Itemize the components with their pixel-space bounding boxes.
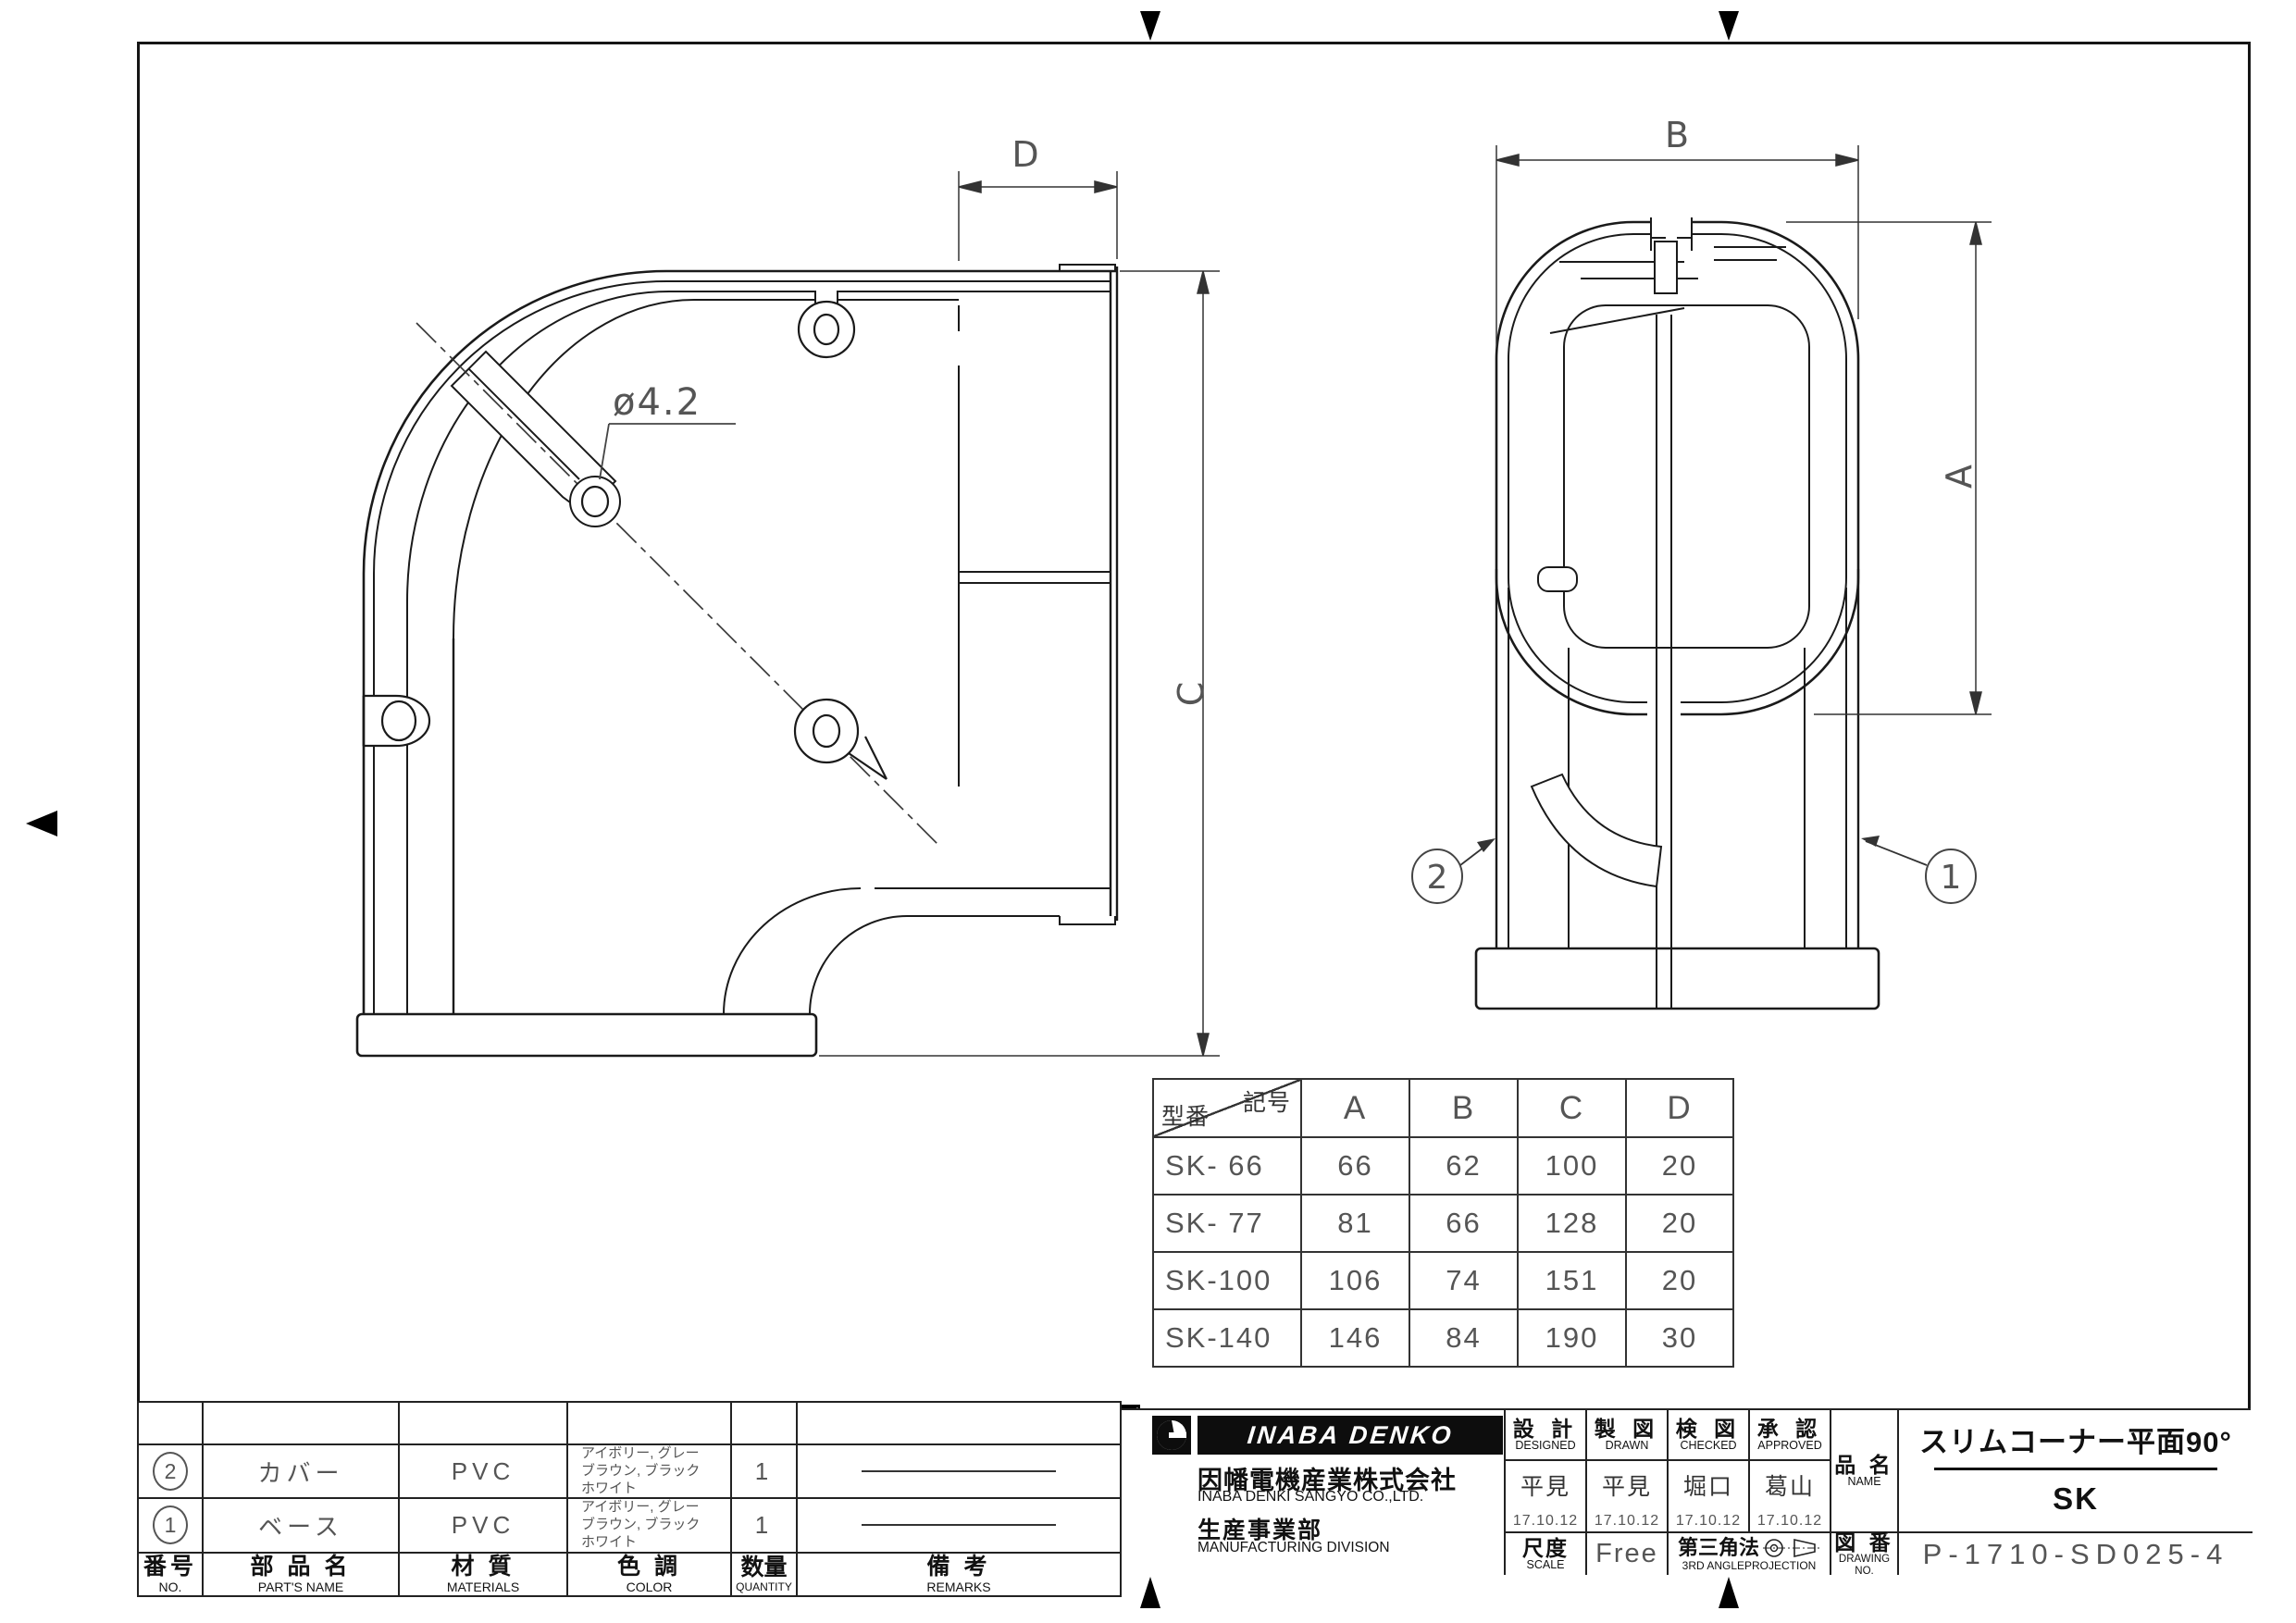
corner-label-model: 型番 [1161, 1098, 1210, 1132]
empty-row [138, 1402, 1121, 1444]
designed-date: 17.10.12 [1513, 1513, 1578, 1530]
part-name: カバー [203, 1444, 399, 1498]
remarks-dash [862, 1470, 1056, 1472]
approval-cell-designed: 平見17.10.12 [1504, 1461, 1585, 1531]
header-name: 部 品 名 [204, 1554, 398, 1580]
dimension-table: 記号 型番 A B C D SK- 66 66 62 100 20 SK- 77… [1152, 1078, 1734, 1368]
header-quantity: 数量 [732, 1555, 796, 1581]
part-qty: 1 [731, 1444, 797, 1498]
model-cell: SK- 77 [1153, 1195, 1301, 1252]
top-latch-notch [1651, 214, 1692, 293]
parts-header-row: 番号 NO. 部 品 名 PART'S NAME 材 質 MATERIALS 色… [138, 1553, 1121, 1596]
part-material: PVC [399, 1498, 567, 1552]
col-header-D: D [1626, 1079, 1733, 1137]
dim-D-label: D [1011, 134, 1038, 175]
reg-mark-top-1-icon [1140, 11, 1160, 41]
company-name-jp: 因幡電機産業株式会社 [1198, 1460, 1512, 1488]
value-cell: 66 [1301, 1137, 1409, 1195]
model-cell: SK-100 [1153, 1252, 1301, 1309]
header-materials: 材 質 [400, 1554, 566, 1580]
section-view-end: B A 2 1 [1379, 106, 2230, 1032]
model-cell: SK- 66 [1153, 1137, 1301, 1195]
product-name: スリムコーナー平面90° [1919, 1419, 2232, 1460]
dimension-C: C [819, 271, 1220, 1056]
value-cell: 106 [1301, 1252, 1409, 1309]
balloon-cover-number: 2 [1427, 859, 1448, 897]
remarks-dash [862, 1524, 1056, 1526]
value-cell: 190 [1518, 1309, 1626, 1367]
col-header-A: A [1301, 1079, 1409, 1137]
balloon-base-number: 1 [1941, 859, 1962, 897]
part-number-badge: 1 [153, 1505, 188, 1544]
drawing-number: P-1710-SD025-4 [1923, 1538, 2229, 1571]
col-header-C: C [1518, 1079, 1626, 1137]
checked-date: 17.10.12 [1676, 1513, 1741, 1530]
value-cell: 20 [1626, 1137, 1733, 1195]
value-cell: 100 [1518, 1137, 1626, 1195]
screw-hole-4-2: ø4.2 [570, 381, 736, 527]
approved-date: 17.10.12 [1757, 1513, 1822, 1530]
drawing-sheet: { "sheet": { "views": { "plan": { "dim_d… [0, 0, 2296, 1623]
third-angle-projection-icon [1763, 1536, 1820, 1560]
value-cell: 66 [1409, 1195, 1518, 1252]
drafter-name: 平見 [1602, 1468, 1652, 1502]
division-jp: 生産事業部 [1198, 1512, 1512, 1538]
reg-mark-bottom-2-icon [1719, 1577, 1739, 1608]
value-cell: 81 [1301, 1195, 1409, 1252]
part-row-cover: 2 カバー PVC アイボリー, グレー ブラウン, ブラック ホワイト 1 [138, 1444, 1121, 1498]
part-number-badge: 2 [153, 1452, 188, 1491]
projection-cell: 第三角法 3RD ANGLEPROJECTION [1667, 1531, 1830, 1575]
approval-cell-checked: 堀口17.10.12 [1667, 1461, 1748, 1531]
hole-diameter-label: ø4.2 [613, 381, 701, 424]
logo-band: INABA DENKO [1198, 1416, 1503, 1455]
scale-value-cell: Free [1585, 1531, 1667, 1575]
approval-header-drawn: 製 図DRAWN [1585, 1410, 1667, 1461]
corner-label-symbol: 記号 [1243, 1084, 1291, 1118]
part-material: PVC [399, 1444, 567, 1498]
part-colors: アイボリー, グレー ブラウン, ブラック ホワイト [567, 1498, 731, 1552]
dimension-D: D [959, 134, 1117, 261]
dwgno-content-cell: P-1710-SD025-4 [1897, 1531, 2253, 1575]
part-name: ベース [203, 1498, 399, 1552]
dim-B-label: B [1665, 115, 1689, 155]
reg-mark-top-2-icon [1719, 11, 1739, 41]
balloon-base: 1 [1861, 836, 1976, 903]
left-mounting-tab [364, 696, 429, 746]
projection-en: 3RD ANGLEPROJECTION [1682, 1560, 1817, 1572]
value-cell: 151 [1518, 1252, 1626, 1309]
dim-C-label: C [1171, 682, 1211, 707]
balloon-cover: 2 [1412, 838, 1496, 903]
product-code: SK [2053, 1481, 2099, 1517]
section-base-flange [1476, 948, 1879, 1009]
approval-header-designed: 設 計DESIGNED [1504, 1410, 1585, 1461]
parts-list-table: 2 カバー PVC アイボリー, グレー ブラウン, ブラック ホワイト 1 1… [137, 1401, 1122, 1597]
value-cell: 62 [1409, 1137, 1518, 1195]
col-header-B: B [1409, 1079, 1518, 1137]
inner-corner-boss [795, 700, 887, 779]
value-cell: 74 [1409, 1252, 1518, 1309]
scale-value: Free [1595, 1539, 1658, 1569]
approval-cell-approved: 葛山17.10.12 [1748, 1461, 1830, 1531]
dimension-A: A [1786, 222, 1992, 714]
table-row: SK-100 106 74 151 20 [1153, 1252, 1733, 1309]
value-cell: 84 [1409, 1309, 1518, 1367]
name-content-cell: スリムコーナー平面90° SK [1897, 1410, 2253, 1531]
dim-A-label: A [1939, 465, 1980, 489]
part-colors: アイボリー, グレー ブラウン, ブラック ホワイト [567, 1444, 731, 1498]
value-cell: 146 [1301, 1309, 1409, 1367]
model-cell: SK-140 [1153, 1309, 1301, 1367]
central-divider [1647, 315, 1681, 1009]
name-label-cell: 品 名 NAME [1830, 1410, 1897, 1531]
scale-label-cell: 尺度SCALE [1504, 1531, 1585, 1575]
dwgno-label-cell: 図 番 DRAWING NO. [1830, 1531, 1897, 1575]
header-remarks: 備 考 [798, 1554, 1120, 1580]
title-block: INABA DENKO 因幡電機産業株式会社 INABA DENKI SANGY… [1120, 1408, 2251, 1573]
checker-name: 堀口 [1683, 1468, 1733, 1502]
drawn-date: 17.10.12 [1595, 1513, 1659, 1530]
table-row: SK-140 146 84 190 30 [1153, 1309, 1733, 1367]
bottom-base-flange [357, 1014, 816, 1056]
approval-cell-drawn: 平見17.10.12 [1585, 1461, 1667, 1531]
projection-jp: 第三角法 [1678, 1537, 1759, 1558]
plan-view-90deg-corner: ø4.2 D C [194, 83, 1416, 1083]
division-en: MANUFACTURING DIVISION [1198, 1540, 1512, 1558]
left-hook-tab [1538, 567, 1577, 591]
curved-flap [1532, 774, 1661, 886]
value-cell: 20 [1626, 1252, 1733, 1309]
value-cell: 20 [1626, 1195, 1733, 1252]
part-row-base: 1 ベース PVC アイボリー, グレー ブラウン, ブラック ホワイト 1 [138, 1498, 1121, 1552]
approver-name: 葛山 [1765, 1468, 1815, 1502]
reg-mark-bottom-1-icon [1140, 1577, 1160, 1608]
value-cell: 30 [1626, 1309, 1733, 1367]
reg-mark-left-icon [26, 811, 57, 836]
dim-table-corner-cell: 記号 型番 [1153, 1079, 1301, 1137]
value-cell: 128 [1518, 1195, 1626, 1252]
company-name-en: INABA DENKI SANGYO CO.,LTD. [1198, 1489, 1512, 1507]
table-row: SK- 66 66 62 100 20 [1153, 1137, 1733, 1195]
table-row: SK- 77 81 66 128 20 [1153, 1195, 1733, 1252]
approval-header-approved: 承 認APPROVED [1748, 1410, 1830, 1461]
company-logo [1152, 1416, 1191, 1455]
logo-text: INABA DENKO [1246, 1421, 1455, 1450]
header-no: 番号 [139, 1554, 202, 1580]
header-color: 色 調 [568, 1554, 730, 1580]
part-qty: 1 [731, 1498, 797, 1552]
approval-header-checked: 検 図CHECKED [1667, 1410, 1748, 1461]
designer-name: 平見 [1520, 1468, 1570, 1502]
